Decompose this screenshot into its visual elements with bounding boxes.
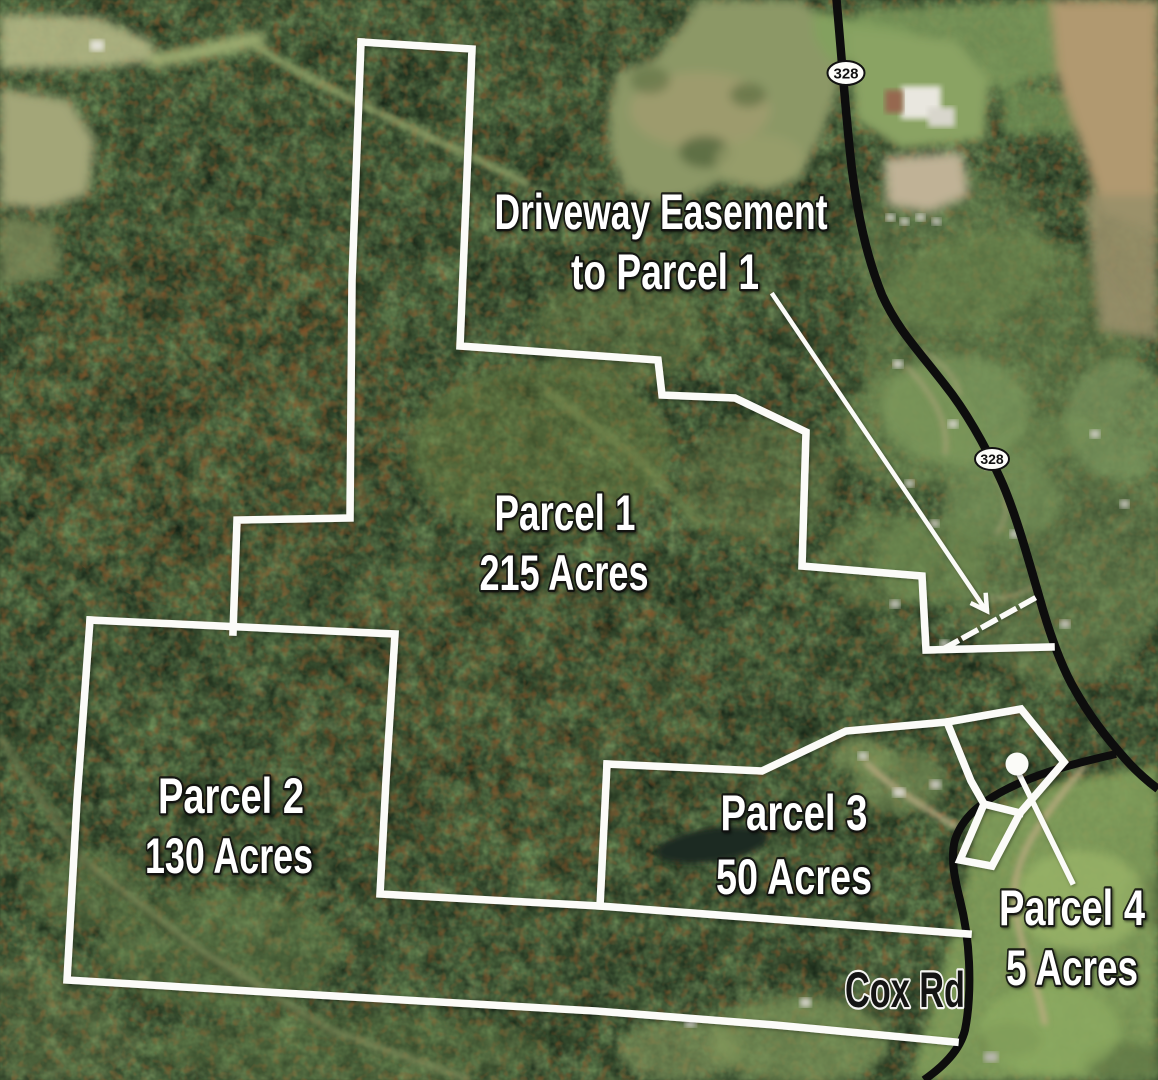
svg-text:Cox Rd: Cox Rd (845, 962, 965, 1018)
svg-text:130 Acres: 130 Acres (145, 828, 313, 884)
svg-text:Driveway Easement: Driveway Easement (495, 184, 828, 240)
svg-text:328: 328 (980, 451, 1004, 467)
svg-text:50 Acres: 50 Acres (716, 849, 872, 905)
svg-text:5 Acres: 5 Acres (1006, 940, 1138, 996)
svg-text:Parcel 3: Parcel 3 (721, 785, 868, 841)
svg-text:Parcel 4: Parcel 4 (999, 880, 1145, 936)
svg-text:Parcel 1: Parcel 1 (495, 485, 636, 541)
svg-text:Parcel 2: Parcel 2 (158, 768, 304, 824)
svg-text:to Parcel 1: to Parcel 1 (571, 244, 759, 300)
svg-text:328: 328 (833, 66, 858, 83)
svg-text:215 Acres: 215 Acres (480, 545, 649, 601)
